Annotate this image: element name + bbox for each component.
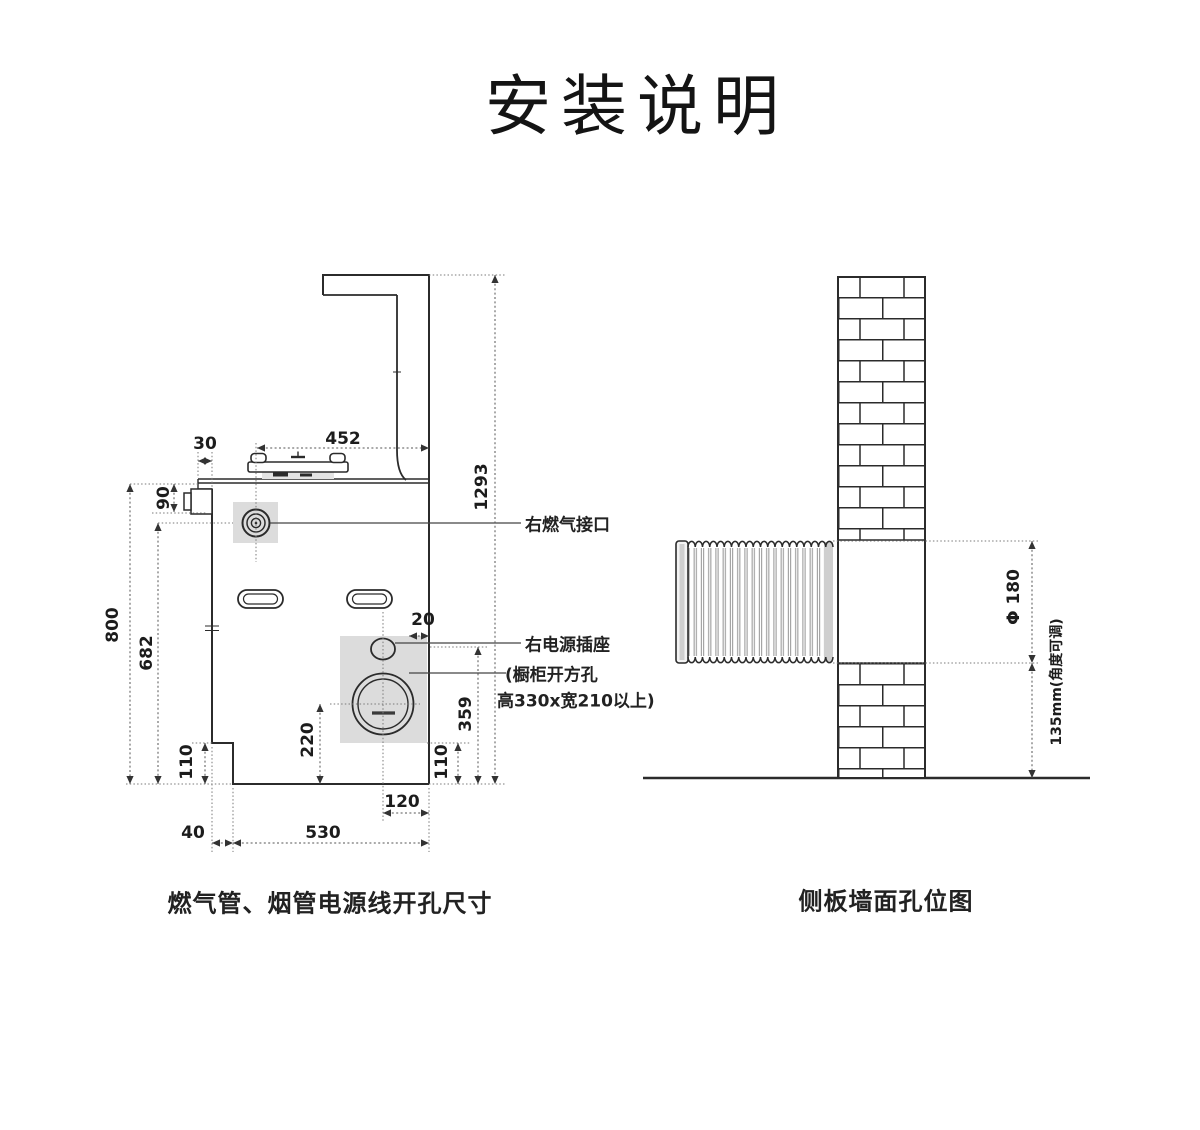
right-diagram-caption: 侧板墙面孔位图 — [799, 882, 974, 917]
dim-circle-to-bottom: 220 — [298, 722, 318, 758]
corrugated-pipe — [676, 540, 833, 664]
dim-left-step-width: 40 — [181, 823, 205, 843]
dim-bottom-left-height: 110 — [177, 744, 197, 780]
dim-top-section-height: 90 — [154, 486, 174, 510]
dim-top-width: 452 — [325, 429, 361, 449]
label-gas-port: 右燃气接口 — [525, 511, 610, 536]
vent-slots — [238, 590, 392, 608]
dim-socket-to-bottom: 359 — [456, 696, 476, 732]
dim-socket-offset: 20 — [411, 610, 435, 630]
dim-bottom-width: 530 — [305, 823, 341, 843]
dim-circle-to-right: 120 — [384, 792, 420, 812]
dim-bottom-right-height: 110 — [432, 744, 452, 780]
label-cabinet-hole-1: (橱柜开方孔 — [505, 661, 598, 686]
label-cabinet-hole-2: 高330x宽210以上) — [497, 687, 655, 712]
dim-pipe-diameter: Φ 180 — [1004, 569, 1024, 625]
dim-pipe-height-note: 135mm(角度可调) — [1046, 618, 1066, 745]
label-power-socket: 右电源插座 — [525, 631, 610, 656]
right-diagram-linework — [643, 277, 1090, 778]
installation-instructions-page: 安装说明 452 30 90 800 682 110 1293 20 220 3… — [0, 0, 1200, 1130]
page-title: 安装说明 — [485, 53, 789, 149]
diagram-linework — [0, 0, 1200, 1130]
dim-left-offset: 30 — [193, 434, 217, 454]
dim-lower-height: 682 — [137, 635, 157, 671]
dim-overall-height: 1293 — [472, 463, 492, 510]
dim-total-height: 800 — [103, 607, 123, 643]
left-diagram-caption: 燃气管、烟管电源线开孔尺寸 — [168, 884, 493, 919]
